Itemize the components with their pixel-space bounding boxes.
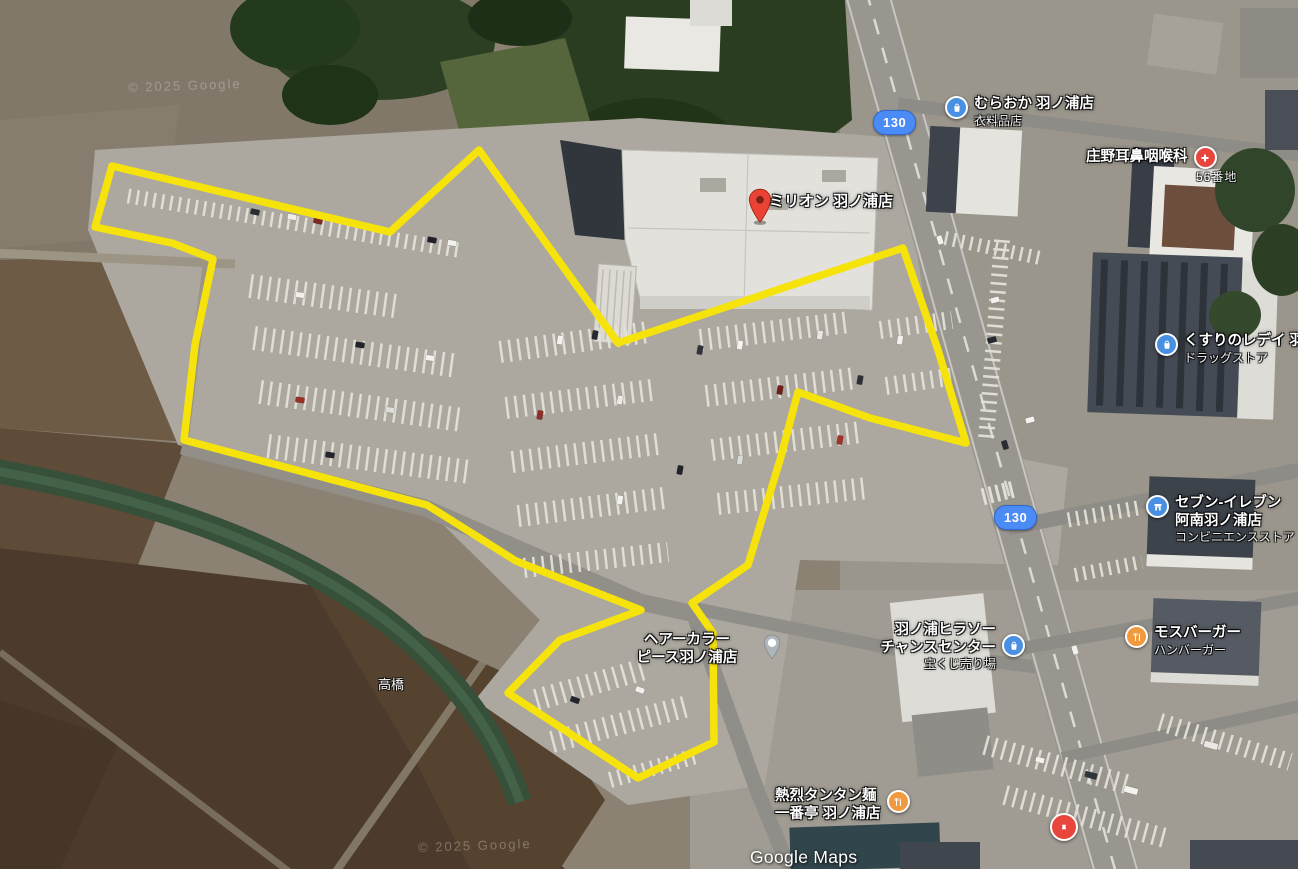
route-130-badge: 130 [994, 505, 1037, 530]
destination-pin[interactable]: ミリオン 羽ノ浦店 [745, 188, 775, 231]
shopping-bag-icon [945, 96, 968, 119]
poi-chance-center[interactable]: 羽ノ浦ヒラソー チャンスセンター 宝くじ売り場 [872, 622, 1025, 673]
poi-hair-color-peace[interactable]: ヘアーカラー ピース羽ノ浦店 [618, 632, 782, 667]
generic-pin-icon [762, 634, 782, 665]
satellite-basemap [0, 0, 1298, 869]
poi-shrine-marker[interactable] [1050, 813, 1078, 841]
shrine-icon [1050, 813, 1078, 841]
route-130-badge: 130 [873, 110, 916, 135]
poi-seven-eleven[interactable]: セブン-イレブン 阿南羽ノ浦店 コンビニエンスストア [1146, 495, 1295, 546]
area-label-takahashi[interactable]: 高橋 [378, 674, 404, 693]
satellite-map-view: © 2025 Google © 2025 Google 130 130 ミリオン… [0, 0, 1298, 869]
restaurant-icon [1125, 625, 1148, 648]
shopping-bag-icon [1155, 333, 1178, 356]
destination-title: ミリオン 羽ノ浦店 [769, 193, 893, 210]
restaurant-icon [887, 790, 910, 813]
google-maps-attribution[interactable]: Google Maps [750, 847, 857, 868]
shopping-bag-icon [1002, 634, 1025, 657]
poi-ichibantei[interactable]: 熱烈タンタン麺 一番亭 羽ノ浦店 [775, 788, 910, 823]
poi-muraoka[interactable]: むらおか 羽ノ浦店 衣料品店 [945, 96, 1094, 129]
hospital-cross-icon [1194, 146, 1217, 169]
convenience-store-icon [1146, 495, 1169, 518]
poi-mos-burger[interactable]: モスバーガー ハンバーガー [1125, 625, 1241, 658]
poi-shono-ent-clinic[interactable]: 庄野耳鼻咽喉科 [1086, 146, 1217, 169]
address-label: 56番地 [1196, 168, 1237, 185]
poi-kusuri-no-lady[interactable]: くすりのレデイ 羽 ドラッグストア [1155, 333, 1298, 366]
